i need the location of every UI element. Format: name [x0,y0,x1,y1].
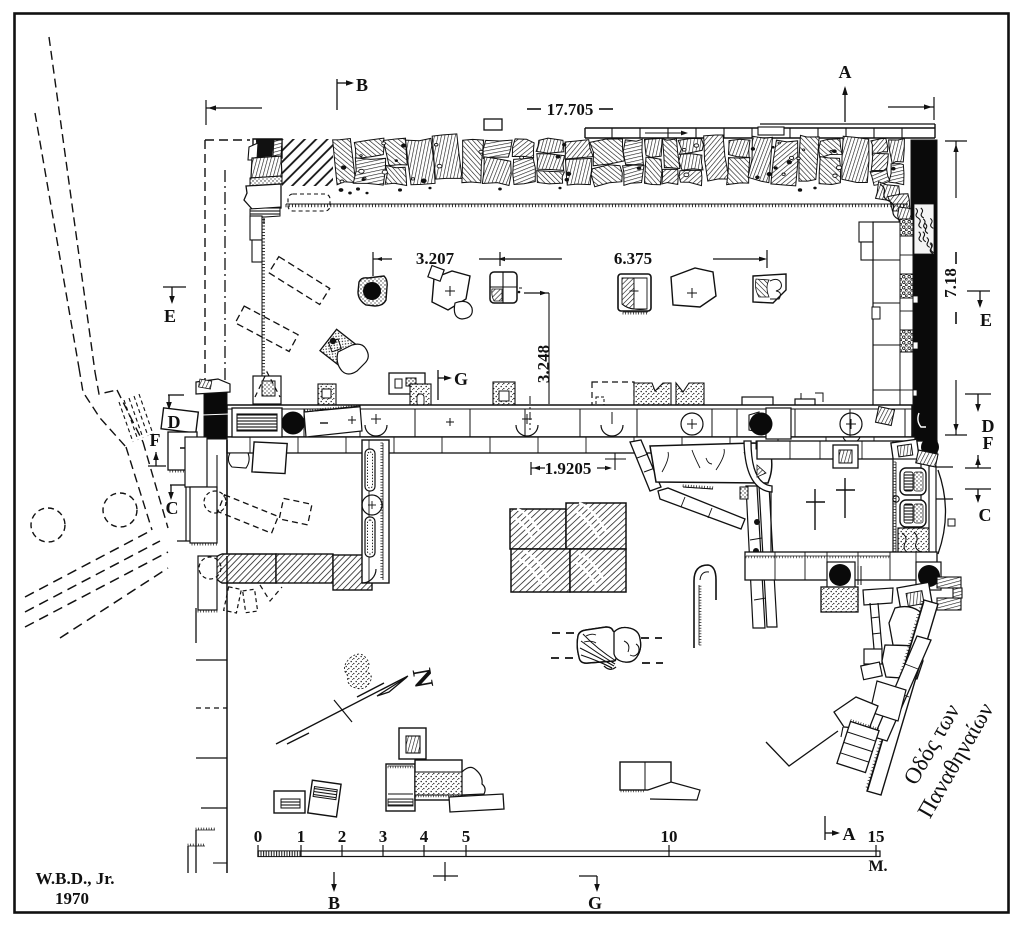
svg-text:0: 0 [254,827,263,846]
svg-text:F: F [150,430,161,450]
svg-text:1: 1 [297,827,306,846]
svg-text:10: 10 [661,827,678,846]
svg-text:2: 2 [338,827,347,846]
svg-text:B: B [328,893,340,913]
svg-text:A: A [843,824,856,844]
svg-text:3.248: 3.248 [534,345,553,383]
svg-text:3: 3 [379,827,388,846]
svg-text:1970: 1970 [55,889,89,908]
svg-text:1.9205: 1.9205 [545,459,592,478]
svg-text:E: E [164,306,176,326]
svg-text:6.375: 6.375 [614,249,652,268]
svg-text:W.B.D., Jr.: W.B.D., Jr. [35,869,114,888]
svg-text:D: D [168,412,181,432]
svg-text:B: B [356,75,368,95]
svg-text:A: A [839,62,852,82]
svg-text:7.18: 7.18 [941,268,960,298]
svg-text:G: G [588,893,602,913]
svg-text:15: 15 [868,827,885,846]
svg-text:E: E [980,310,992,330]
svg-text:3.207: 3.207 [416,249,455,268]
svg-text:C: C [979,505,992,525]
svg-text:G: G [454,369,468,389]
svg-text:5: 5 [462,827,471,846]
svg-text:F: F [983,433,994,453]
svg-text:4: 4 [420,827,429,846]
svg-text:M.: M. [868,858,887,875]
svg-text:17.705: 17.705 [547,100,594,119]
svg-text:C: C [166,498,179,518]
